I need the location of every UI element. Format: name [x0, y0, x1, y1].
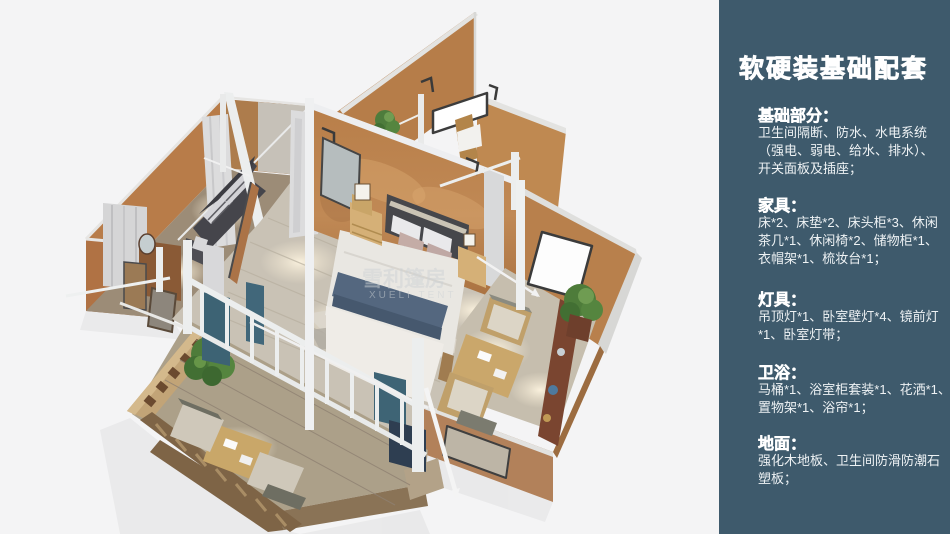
svg-text:XUELI TENT: XUELI TENT	[369, 290, 457, 301]
svg-text:雪利篷房: 雪利篷房	[362, 267, 446, 291]
